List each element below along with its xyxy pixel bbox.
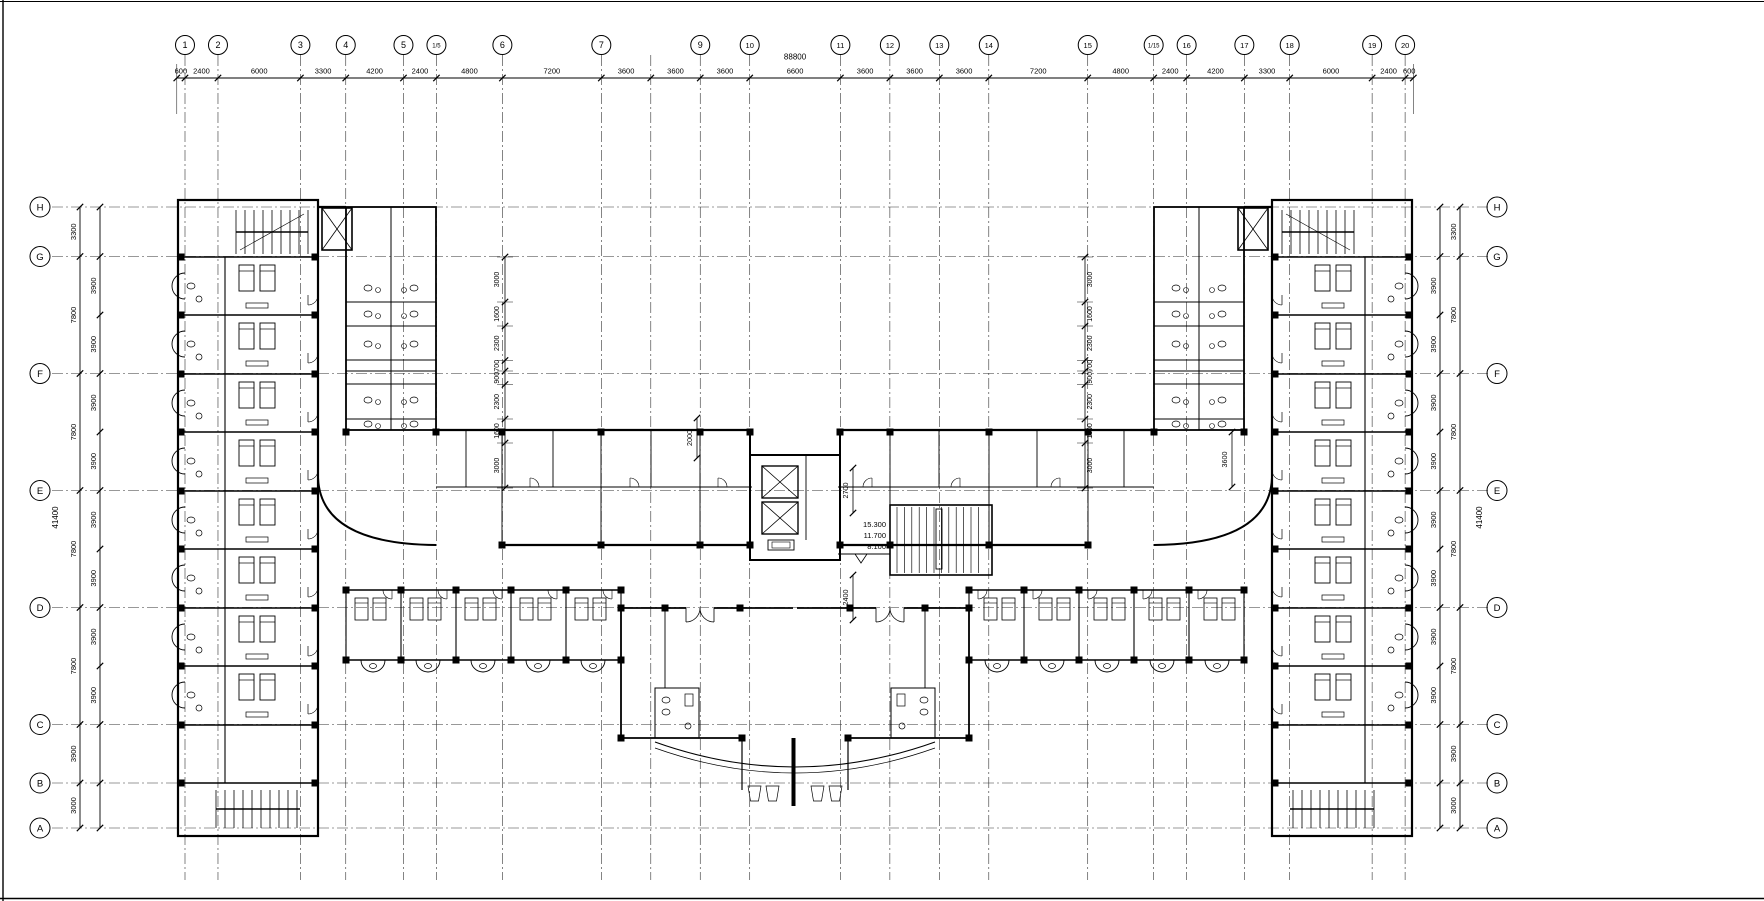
level-label: 11.700 xyxy=(864,531,886,540)
column-marker xyxy=(1406,429,1413,436)
dim-label: 3900 xyxy=(1429,511,1438,528)
column-marker xyxy=(1241,657,1248,664)
column-marker xyxy=(178,780,185,787)
column-marker xyxy=(598,429,605,436)
column-marker xyxy=(1186,587,1193,594)
central-stair xyxy=(890,505,992,575)
column-marker xyxy=(887,429,894,436)
dim-label: 2300 xyxy=(1087,394,1094,410)
dim-label: 3600 xyxy=(857,67,874,76)
axis-bubble-label: 9 xyxy=(698,40,703,50)
dim-label: 3900 xyxy=(89,277,98,294)
left-dimension-column: 3300780078007800780039003000390039003900… xyxy=(30,197,103,838)
column-marker xyxy=(178,254,185,261)
column-marker xyxy=(1272,663,1279,670)
dim-label: 1600 xyxy=(494,306,501,322)
column-marker xyxy=(1406,312,1413,319)
dim-label: 1600 xyxy=(1087,306,1094,322)
dim-label: 3900 xyxy=(1429,453,1438,470)
building-left-half xyxy=(172,200,793,836)
column-marker xyxy=(966,657,973,664)
dim-label: 3900 xyxy=(1429,628,1438,645)
axis-bubble-label: C xyxy=(1494,720,1501,731)
axis-bubble-label: 13 xyxy=(935,41,943,50)
axis-bubble-label: 18 xyxy=(1286,41,1294,50)
column-marker xyxy=(312,780,319,787)
column-marker xyxy=(697,542,704,549)
axis-bubble-label: 7 xyxy=(599,40,604,50)
column-marker xyxy=(618,735,625,742)
right-dimension-column: 3300780078007800780039003000390039003900… xyxy=(1429,197,1507,838)
dim-label: 3600 xyxy=(1220,452,1229,468)
dim-label: 3900 xyxy=(1429,277,1438,294)
axis-bubble-label: 1 xyxy=(182,40,187,50)
column-marker xyxy=(312,429,319,436)
column-marker xyxy=(922,605,929,612)
column-marker xyxy=(178,546,185,553)
dim-label: 700 xyxy=(494,360,501,372)
dim-label: 3000 xyxy=(494,458,501,474)
axis-bubble-label: 6 xyxy=(500,40,505,50)
dim-label: 700 xyxy=(1087,360,1094,372)
axis-bubble-label: 12 xyxy=(886,41,894,50)
dim-label: 3600 xyxy=(956,67,973,76)
column-marker xyxy=(986,429,993,436)
axis-bubble-label: 4 xyxy=(343,40,348,50)
column-marker xyxy=(178,722,185,729)
column-marker xyxy=(398,657,405,664)
elevator-core xyxy=(750,430,840,560)
axis-bubble-label: B xyxy=(37,778,43,789)
column-marker xyxy=(1272,429,1279,436)
top-dimension-row: 6002400600033004200240048007200360036003… xyxy=(174,53,1417,82)
dim-label: 7800 xyxy=(69,424,78,441)
column-marker xyxy=(1085,542,1092,549)
dim-label: 3600 xyxy=(717,67,734,76)
dim-label: 2300 xyxy=(1087,335,1094,351)
dim-label: 7200 xyxy=(1030,67,1047,76)
dim-label: 3900 xyxy=(69,745,78,762)
viewport-frame xyxy=(0,0,1764,901)
column-marker xyxy=(563,587,570,594)
column-marker xyxy=(966,587,973,594)
dim-label: 4800 xyxy=(1112,67,1129,76)
dim-label: 3900 xyxy=(1449,745,1458,762)
column-marker xyxy=(1272,371,1279,378)
level-label: 8.100 xyxy=(867,542,886,551)
axis-bubble-label: D xyxy=(37,603,44,614)
column-marker xyxy=(1272,780,1279,787)
column-marker xyxy=(453,657,460,664)
column-marker xyxy=(737,605,744,612)
axis-bubble-label: B xyxy=(1494,778,1500,789)
dim-label: 2400 xyxy=(841,590,850,606)
dim-label: 1600 xyxy=(1087,423,1094,439)
axis-bubble-label: E xyxy=(1494,486,1500,497)
overall-dimension-label: 88800 xyxy=(784,53,807,62)
axis-bubble-label: F xyxy=(1494,369,1500,380)
column-marker xyxy=(1131,657,1138,664)
axis-bubble-label: 3 xyxy=(298,40,303,50)
axis-bubble-label: E xyxy=(37,486,43,497)
axis-bubble-label: H xyxy=(37,202,44,213)
column-marker xyxy=(1272,312,1279,319)
axis-bubble-label: 2 xyxy=(215,40,220,50)
dim-label: 2300 xyxy=(494,335,501,351)
column-marker xyxy=(178,312,185,319)
column-marker xyxy=(598,542,605,549)
dim-label: 4200 xyxy=(366,67,383,76)
axis-bubble-label: 15 xyxy=(1084,41,1092,50)
column-marker xyxy=(1241,429,1248,436)
column-marker xyxy=(343,587,350,594)
column-marker xyxy=(1151,429,1158,436)
dim-label: 3300 xyxy=(315,67,332,76)
dim-label: 3900 xyxy=(1429,570,1438,587)
column-marker xyxy=(1076,587,1083,594)
column-marker xyxy=(697,429,704,436)
dim-label: 2300 xyxy=(494,394,501,410)
column-marker xyxy=(398,587,405,594)
overall-dimension-label: 41400 xyxy=(1475,506,1484,529)
column-marker xyxy=(618,657,625,664)
dim-label: 3900 xyxy=(89,570,98,587)
dim-label: 7800 xyxy=(1449,541,1458,558)
axis-bubble-label: 5 xyxy=(401,40,406,50)
column-marker xyxy=(1076,657,1083,664)
dim-label: 900 xyxy=(1087,372,1094,384)
column-marker xyxy=(1241,587,1248,594)
column-marker xyxy=(618,605,625,612)
column-marker xyxy=(1406,371,1413,378)
dim-label: 3300 xyxy=(1449,223,1458,240)
column-marker xyxy=(618,587,625,594)
axis-bubble-label: 11 xyxy=(836,41,844,50)
column-marker xyxy=(433,429,440,436)
service-dim-chain-left: 300016002300700900230016003000 xyxy=(494,254,513,491)
dim-label: 900 xyxy=(494,372,501,384)
column-marker xyxy=(453,587,460,594)
dim-label: 2400 xyxy=(1380,67,1397,76)
dim-label: 7200 xyxy=(544,67,561,76)
dim-label: 3600 xyxy=(618,67,635,76)
column-marker xyxy=(312,546,319,553)
dim-2400: 2400 xyxy=(841,572,856,623)
dim-label: 2700 xyxy=(841,483,850,499)
column-marker xyxy=(178,663,185,670)
column-marker xyxy=(1131,587,1138,594)
dim-label: 7800 xyxy=(69,307,78,324)
column-marker xyxy=(312,605,319,612)
dim-label: 7800 xyxy=(1449,424,1458,441)
column-marker xyxy=(1406,546,1413,553)
column-marker xyxy=(1021,587,1028,594)
axis-bubble-label: A xyxy=(1494,823,1501,834)
column-marker xyxy=(178,605,185,612)
dim-label: 3900 xyxy=(89,687,98,704)
dim-label: 3300 xyxy=(69,223,78,240)
column-marker xyxy=(312,312,319,319)
column-marker xyxy=(343,657,350,664)
dim-label: 3000 xyxy=(1087,272,1094,288)
service-dim-chain-right: 300016002300700900230016003000 xyxy=(1077,254,1094,491)
column-marker xyxy=(563,657,570,664)
axis-bubble-label: C xyxy=(37,720,44,731)
dim-label: 2400 xyxy=(412,67,429,76)
dim-label: 3900 xyxy=(89,511,98,528)
building-plan xyxy=(172,200,1418,836)
column-marker xyxy=(1406,605,1413,612)
column-marker xyxy=(1272,605,1279,612)
axis-bubble-label: G xyxy=(36,252,43,263)
axis-bubble-label: 1/5 xyxy=(432,43,441,49)
column-marker xyxy=(1021,657,1028,664)
dim-label: 6600 xyxy=(787,67,804,76)
column-marker xyxy=(1272,546,1279,553)
dim-label: 6000 xyxy=(1323,67,1340,76)
axis-bubble-label: 17 xyxy=(1240,41,1248,50)
dim-label: 1600 xyxy=(494,423,501,439)
axis-bubble-label: 16 xyxy=(1182,41,1190,50)
dim-label: 6000 xyxy=(251,67,268,76)
dim-label: 3900 xyxy=(89,628,98,645)
column-marker xyxy=(508,587,515,594)
dim-label: 2400 xyxy=(193,67,210,76)
column-marker xyxy=(343,429,350,436)
column-marker xyxy=(312,488,319,495)
dim-label: 4800 xyxy=(461,67,478,76)
dim-label: 2400 xyxy=(1162,67,1179,76)
column-marker xyxy=(662,605,669,612)
dim-label: 600 xyxy=(175,67,188,76)
column-marker xyxy=(966,735,973,742)
axis-bubble-label: H xyxy=(1494,202,1501,213)
column-marker xyxy=(1272,254,1279,261)
column-marker xyxy=(1406,254,1413,261)
axis-bubble-label: 10 xyxy=(746,41,754,50)
dim-label: 3000 xyxy=(494,272,501,288)
column-marker xyxy=(1186,657,1193,664)
column-marker xyxy=(312,663,319,670)
axis-bubble-label: 1/15 xyxy=(1148,43,1160,49)
entrance-canopy xyxy=(655,738,935,806)
column-marker xyxy=(739,735,746,742)
dim-label: 600 xyxy=(1403,67,1416,76)
column-marker xyxy=(178,488,185,495)
level-label: 15.300 xyxy=(863,520,886,529)
column-marker xyxy=(1272,488,1279,495)
dim-label: 7800 xyxy=(69,541,78,558)
dim-label: 2000 xyxy=(685,430,694,446)
column-marker xyxy=(312,254,319,261)
column-marker xyxy=(312,722,319,729)
column-marker xyxy=(1406,663,1413,670)
dim-label: 7800 xyxy=(69,658,78,675)
overall-dimension-label: 41400 xyxy=(51,506,60,529)
column-marker xyxy=(1272,722,1279,729)
column-marker xyxy=(499,542,506,549)
axis-bubble-label: 20 xyxy=(1401,41,1409,50)
column-marker xyxy=(845,735,852,742)
axis-bubble-label: 19 xyxy=(1368,41,1376,50)
dim-label: 3900 xyxy=(89,336,98,353)
column-marker xyxy=(178,429,185,436)
dim-label: 3900 xyxy=(1429,336,1438,353)
dim-label: 3600 xyxy=(667,67,684,76)
floor-plan-drawing: 6002400600033004200240048007200360036003… xyxy=(0,0,1764,901)
column-marker xyxy=(1406,488,1413,495)
dim-label: 3300 xyxy=(1259,67,1276,76)
column-marker xyxy=(312,371,319,378)
dim-label: 3000 xyxy=(1449,797,1458,814)
left-dimension-column-bubbles: HGFEDCBA xyxy=(30,197,50,838)
level-annotation: 15.30011.7008.100 xyxy=(838,520,890,563)
dim-label: 7800 xyxy=(1449,307,1458,324)
dim-label: 3900 xyxy=(1429,394,1438,411)
axis-bubble-label: D xyxy=(1494,603,1501,614)
dim-label: 7800 xyxy=(1449,658,1458,675)
axis-bubble-label: 14 xyxy=(985,41,993,50)
floor-plan-canvas: 6002400600033004200240048007200360036003… xyxy=(0,0,1764,901)
column-marker xyxy=(178,371,185,378)
column-marker xyxy=(966,605,973,612)
dim-label: 3600 xyxy=(906,67,923,76)
axis-bubble-label: G xyxy=(1493,252,1500,263)
dim-label: 3900 xyxy=(1429,687,1438,704)
axis-bubble-label: A xyxy=(37,823,44,834)
dim-3600: 3600 xyxy=(1220,429,1235,490)
column-marker xyxy=(1406,780,1413,787)
column-marker xyxy=(508,657,515,664)
dim-label: 3900 xyxy=(89,453,98,470)
dim-label: 4200 xyxy=(1207,67,1224,76)
dim-label: 3000 xyxy=(1087,458,1094,474)
dim-2000: 2000 xyxy=(685,415,700,461)
right-dimension-column-bubbles: HGFEDCBA xyxy=(1487,197,1507,838)
axis-bubble-label: F xyxy=(37,369,43,380)
column-marker xyxy=(1406,722,1413,729)
dim-label: 3000 xyxy=(69,797,78,814)
dim-label: 3900 xyxy=(89,394,98,411)
